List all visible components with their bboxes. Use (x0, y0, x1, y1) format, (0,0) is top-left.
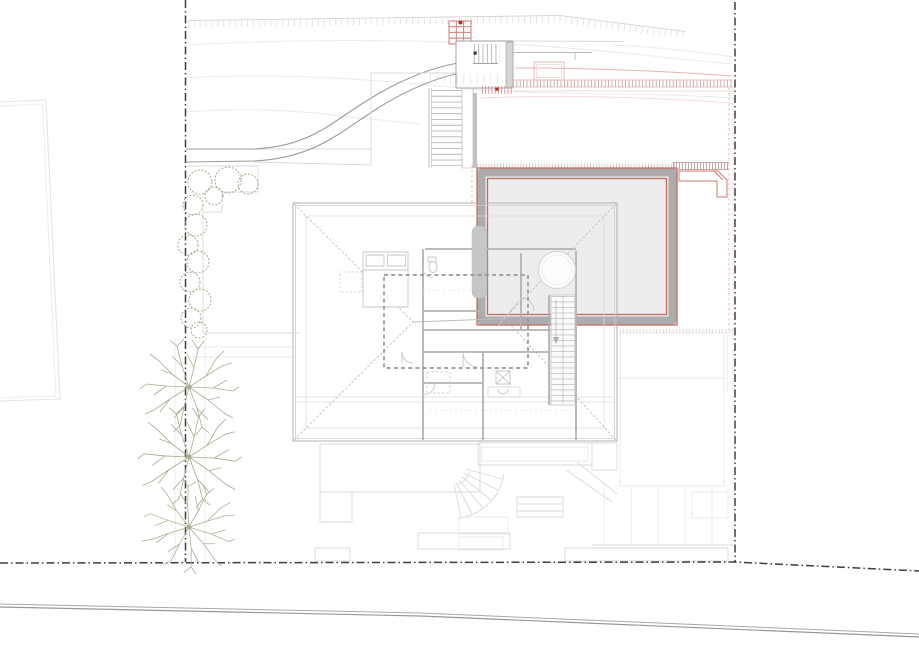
red-marker-dot (495, 87, 499, 91)
main-exterior-stair (429, 88, 477, 168)
garden-path (175, 166, 300, 561)
tree-3 (132, 471, 246, 583)
tree-2 (138, 407, 242, 508)
garden-ramp (565, 462, 733, 561)
terrace-side-steps (673, 163, 729, 198)
neighbor-plot-outline (0, 100, 60, 401)
red-marker-dot (459, 21, 463, 25)
retaining-wall-hatch-band (513, 80, 733, 91)
entry-gate-grate (449, 21, 471, 45)
entry-door-mark (474, 52, 477, 55)
lower-level-structures (315, 332, 733, 561)
interior-desk (488, 371, 520, 397)
stair-side-wall (473, 93, 477, 168)
garden-trees (132, 339, 246, 583)
hedge-shrubs (178, 167, 258, 338)
site-plan-canvas: Architectural site plan — roof plan of a… (0, 0, 919, 650)
site-plan-drawing: Architectural site plan — roof plan of a… (0, 0, 919, 650)
interior-stair (551, 295, 575, 405)
closet-dashed (340, 272, 362, 292)
interior-toilet (428, 257, 437, 273)
boundary-line-bottom (0, 562, 919, 571)
interior-bed (363, 252, 408, 307)
lower-street (0, 604, 919, 637)
pool-terrace (477, 166, 677, 326)
interior-chimney (472, 226, 487, 298)
fan-stair (454, 469, 504, 518)
garden-steps (517, 497, 563, 517)
interior-round-table (539, 252, 576, 289)
